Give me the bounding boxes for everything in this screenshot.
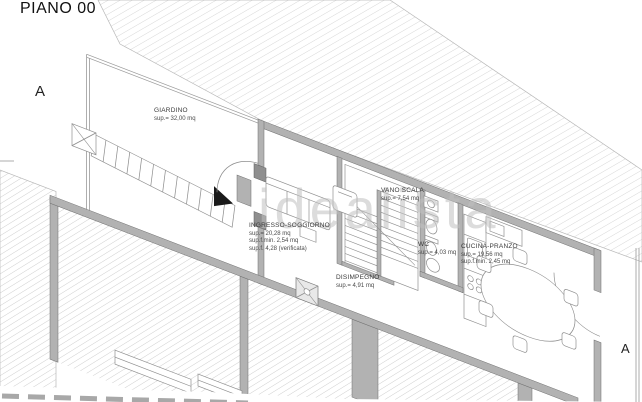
section-marker-a-left: A bbox=[35, 83, 45, 100]
room-label-wc: WC sup.= 4,03 mq bbox=[418, 241, 456, 257]
pillar bbox=[237, 175, 251, 206]
page-title: PIANO 00 bbox=[20, 0, 96, 18]
drain-grate-icon bbox=[72, 124, 96, 155]
neighbour-wall bbox=[352, 319, 378, 402]
room-label-disimpegno: DISIMPEGNO sup.= 4,91 mq bbox=[336, 274, 380, 290]
neighbour-wall bbox=[240, 276, 248, 397]
shower-icon bbox=[427, 256, 440, 274]
neighbour-wall bbox=[50, 197, 58, 362]
room-label-giardino: GIARDINO sup.= 32,00 mq bbox=[154, 107, 196, 123]
room-label-cucina-pranzo: CUCINA-PRANZO sup.= 19,56 mq sup.f.min. … bbox=[461, 243, 518, 267]
chair-icon bbox=[562, 332, 576, 350]
adjacent-area-left bbox=[0, 170, 56, 402]
section-marker-a-right: A bbox=[621, 341, 630, 356]
garden-steps bbox=[91, 134, 235, 227]
chair-icon bbox=[513, 335, 527, 353]
floor-plan-canvas: idealista PIANO 00 A A GIARDINO sup.= 32… bbox=[0, 0, 642, 402]
room-label-ingresso-soggiorno: INGRESSO-SOGGIORNO sup.= 20,28 mq sup.f.… bbox=[249, 222, 330, 253]
adjacent-room bbox=[378, 329, 518, 402]
room-label-vano-scala: VANO SCALA sup.= 7,54 mq bbox=[381, 187, 424, 203]
